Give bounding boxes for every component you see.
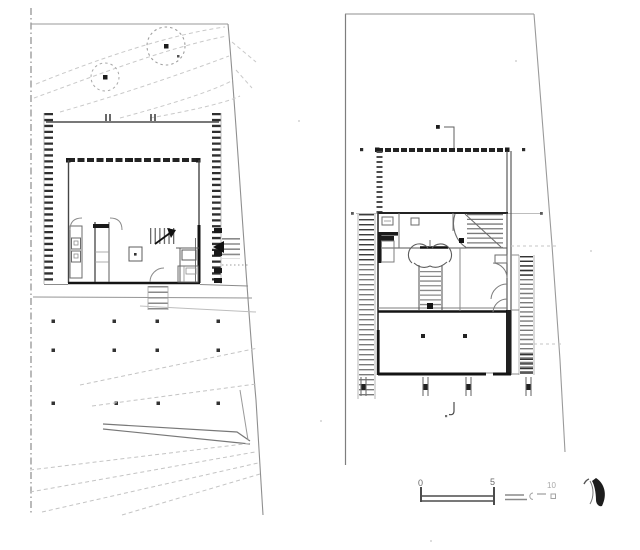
scale-label-5: 5 [490, 477, 495, 487]
hatched-wall-bands [44, 113, 221, 284]
tree-small [91, 63, 119, 91]
right-floor-plan [345, 14, 565, 465]
central-stair [419, 265, 442, 310]
left-site-plan [30, 8, 263, 515]
upper-terrace-walls [351, 148, 543, 215]
terrace-and-columns [33, 297, 256, 405]
terrain-contours-upper [34, 27, 256, 118]
roof-marker [436, 125, 454, 148]
upper-stair [454, 214, 502, 249]
hook-mark [445, 402, 454, 417]
north-arrow-icon [584, 478, 605, 506]
site-boundary [31, 8, 263, 515]
scale-label-10: 10 [547, 481, 556, 490]
living-room-columns [421, 334, 467, 338]
top-terrace-wall [46, 114, 219, 122]
left-gallery-band [358, 213, 375, 399]
terrain-contours-lower [30, 348, 260, 515]
pilotis-stubs [361, 377, 531, 396]
scale-bar: 0 5 10 [418, 477, 556, 505]
tree-large [147, 27, 185, 65]
curved-vestibule [408, 240, 451, 267]
floor-plan-sheet: 0 5 10 [0, 0, 640, 550]
stair-arrow-icon [167, 228, 176, 238]
interior-partitions [150, 248, 199, 282]
kitchen-fixtures [70, 218, 142, 282]
pergola-column-dots [52, 320, 221, 406]
scanned-architectural-drawing: 0 5 10 [0, 0, 640, 550]
interior-stair [150, 228, 177, 244]
right-doors [491, 255, 507, 312]
paper-speckles [298, 60, 592, 542]
entry-porch [213, 228, 248, 283]
scale-label-0: 0 [418, 478, 423, 488]
